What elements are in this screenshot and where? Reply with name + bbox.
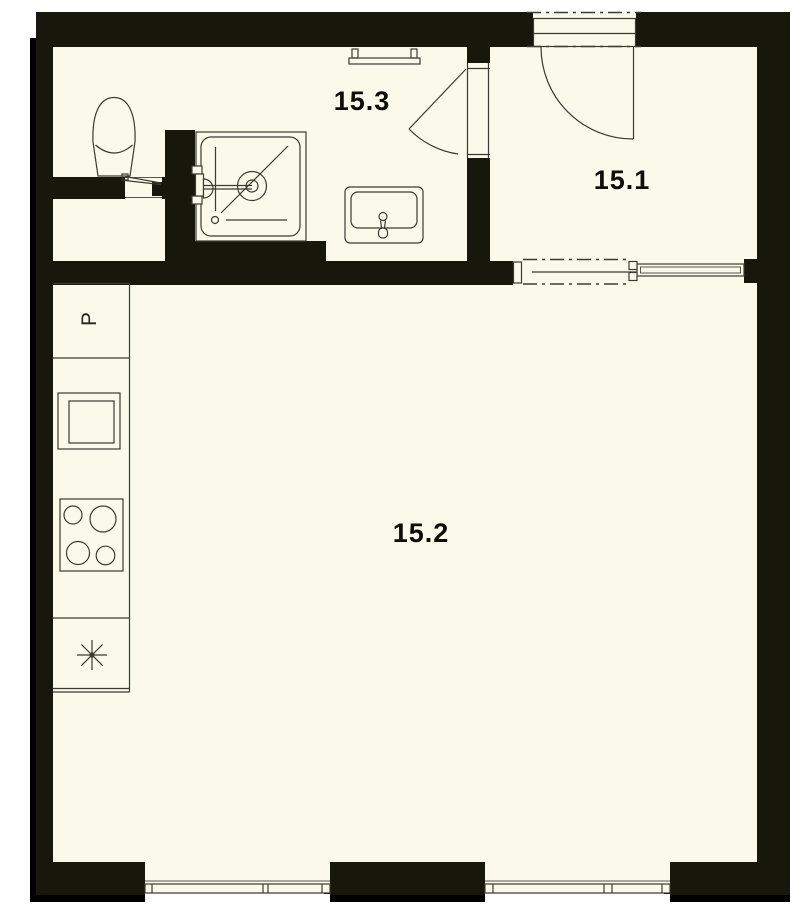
fridge-label: P [78,312,101,326]
kitchen-sink-icon [77,640,107,670]
wall-bottom-seg1 [36,862,145,895]
wall-under-shower [195,241,326,261]
wall-hall-bath-top [467,47,490,63]
wall-hall-bath-bottom [467,158,490,261]
exterior-below-window-left [145,894,330,910]
sliding-handle-top [629,262,637,270]
wall-top-left [36,12,533,47]
wall-toilet-partition-left [36,177,125,199]
wall-main-band [36,261,513,285]
wall-sliding-stub [744,259,758,283]
wall-right [757,12,790,895]
wall-left [36,12,53,895]
floor-plan-drawing: P 15.1 15.2 15.3 [0,0,807,910]
exterior-below-window-right [485,894,670,910]
plan-paper [36,12,790,895]
room-label-bathroom: 15.3 [334,86,391,116]
wall-bottom-seg3 [670,862,790,895]
room-label-living-kitchen: 15.2 [393,518,450,548]
sliding-panel [637,264,744,276]
room-label-hall: 15.1 [594,165,651,195]
floor-plan-page: P 15.1 15.2 15.3 [0,0,807,910]
wall-shower-side [165,130,195,261]
fridge-icon: P [78,312,101,326]
wall-bottom-seg2 [330,862,485,895]
sliding-handle-bottom [629,273,637,281]
